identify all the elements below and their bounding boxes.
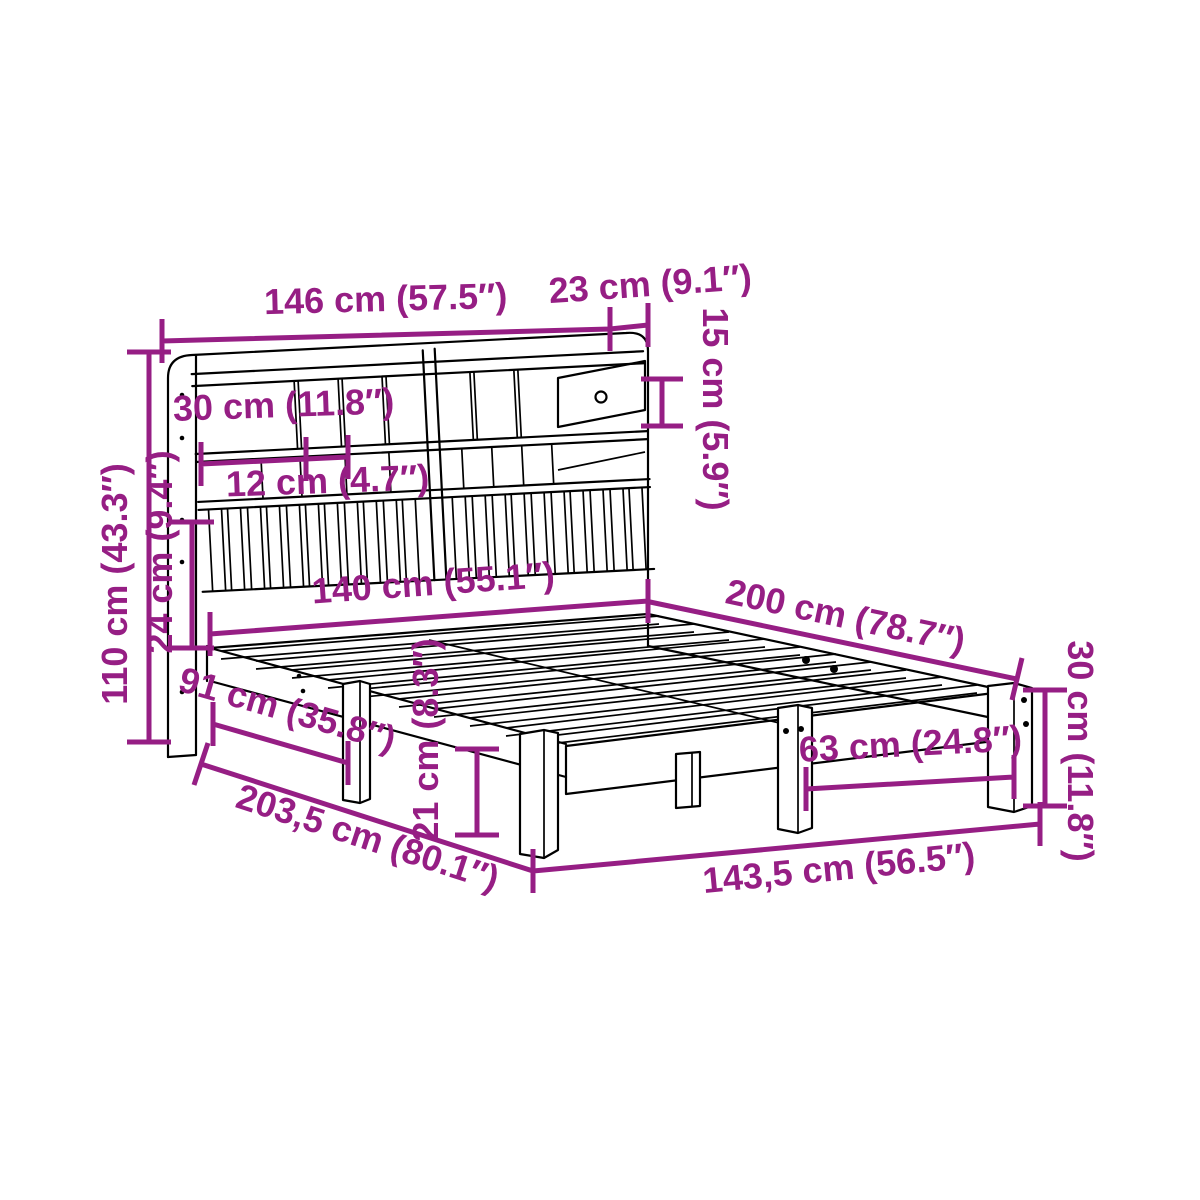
drawer-finger-hole [596, 392, 607, 403]
leg-background-stub [676, 752, 700, 808]
dim-label-headboard-height: 110 cm (43.3″) [94, 463, 135, 704]
headboard-top-lip [192, 351, 644, 386]
dim-label-shelf-width: 30 cm (11.8″) [172, 380, 395, 429]
dimline-clearance-height [455, 749, 499, 835]
dim-label-slat-panel-height: 24 cm (9.4″) [139, 450, 180, 653]
dim-label-headboard-depth: 23 cm (9.1″) [547, 256, 753, 311]
leg-foot-left [520, 730, 558, 858]
dim-label-headboard-width: 146 cm (57.5″) [263, 275, 507, 322]
dim-label-shelf-gap: 12 cm (4.7″) [225, 456, 430, 504]
dim-label-frame-height: 30 cm (11.8″) [1060, 640, 1101, 861]
bed-dimension-diagram: 146 cm (57.5″) 23 cm (9.1″) 15 cm (5.9″)… [0, 0, 1200, 1200]
dimline-headboard-depth [610, 303, 648, 347]
shelf-under-drawer [558, 452, 645, 470]
diagram-page: 146 cm (57.5″) 23 cm (9.1″) 15 cm (5.9″)… [0, 0, 1200, 1200]
dim-label-drawer-height: 15 cm (5.9″) [695, 307, 736, 510]
dim-label-clearance-height: 21 cm (8.3″) [405, 638, 446, 841]
headboard-drawer [558, 361, 645, 427]
